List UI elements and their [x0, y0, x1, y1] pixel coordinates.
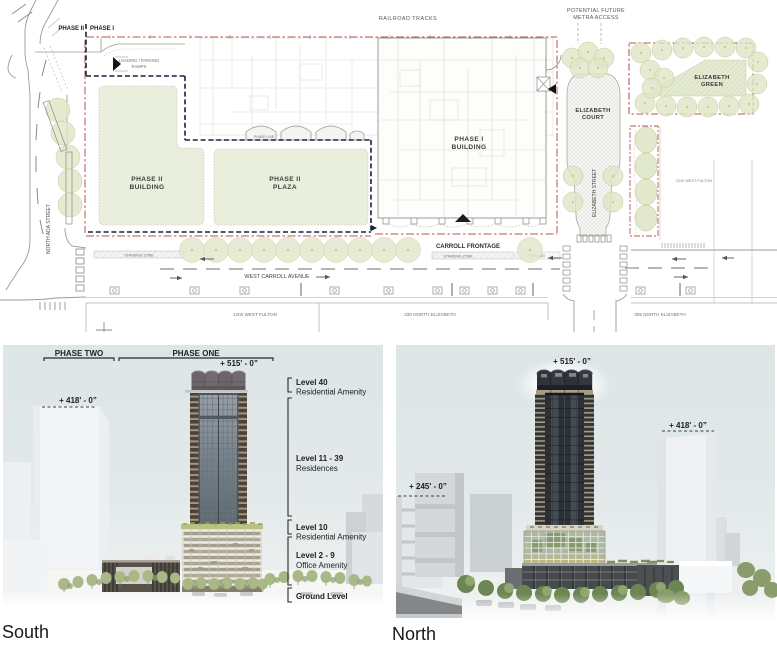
svg-text:PHASE LINE: PHASE LINE [254, 135, 275, 139]
svg-text:Office Amenity: Office Amenity [296, 561, 347, 570]
svg-text:CARROLL FRONTAGE: CARROLL FRONTAGE [436, 244, 500, 250]
svg-text:Ground Level: Ground Level [296, 592, 348, 601]
svg-text:1200 WEST FULTON: 1200 WEST FULTON [233, 312, 277, 317]
svg-text:Level 2 - 9: Level 2 - 9 [296, 551, 335, 560]
svg-text:COURT: COURT [582, 115, 604, 121]
svg-text:BUILDING: BUILDING [129, 184, 164, 191]
svg-text:South: South [2, 622, 49, 642]
svg-text:METRA ACCESS: METRA ACCESS [573, 15, 619, 21]
svg-text:PLAZA: PLAZA [273, 184, 297, 191]
svg-text:PHASE I: PHASE I [454, 136, 483, 143]
svg-text:Level 11 - 39: Level 11 - 39 [296, 454, 344, 463]
svg-text:POTENTIAL FUTURE: POTENTIAL FUTURE [567, 8, 625, 14]
svg-text:PHASE TWO: PHASE TWO [55, 349, 103, 358]
svg-text:North: North [392, 624, 436, 644]
svg-text:WEST CARROLL AVENUE: WEST CARROLL AVENUE [244, 274, 310, 280]
svg-text:ELIZABETH STREET: ELIZABETH STREET [592, 169, 598, 217]
svg-text:305 NORTH ELIZABETH: 305 NORTH ELIZABETH [634, 312, 685, 317]
svg-text:+ 515' - 0”: + 515' - 0” [553, 357, 591, 366]
svg-text:RAILROAD TRACKS: RAILROAD TRACKS [379, 16, 437, 22]
svg-text:+ 418' - 0”: + 418' - 0” [59, 396, 97, 405]
svg-text:ELIZABETH: ELIZABETH [575, 108, 610, 114]
svg-text:STANDING ZONE: STANDING ZONE [124, 253, 154, 257]
svg-text:PHASE II: PHASE II [269, 176, 300, 183]
svg-text:PHASE ONE: PHASE ONE [172, 349, 220, 358]
svg-text:+ 515' - 0”: + 515' - 0” [220, 359, 258, 368]
svg-text:Residences: Residences [296, 464, 338, 473]
svg-text:GREEN: GREEN [701, 82, 723, 88]
svg-text:Residential Amenity: Residential Amenity [296, 388, 366, 397]
svg-text:330 NORTH ELIZABETH: 330 NORTH ELIZABETH [404, 312, 455, 317]
svg-text:PHASE II: PHASE II [131, 176, 162, 183]
svg-text:BUILDING: BUILDING [451, 144, 486, 151]
svg-text:+ 418' - 0”: + 418' - 0” [669, 421, 707, 430]
svg-text:STANDING ZONE: STANDING ZONE [443, 254, 473, 258]
svg-text:PHASE I: PHASE I [90, 26, 114, 32]
svg-text:NORTH ADA STREET: NORTH ADA STREET [46, 204, 52, 254]
svg-text:1240 WEST FULTON: 1240 WEST FULTON [676, 179, 713, 183]
svg-text:PHASE II: PHASE II [58, 26, 84, 32]
svg-text:Level 10: Level 10 [296, 523, 328, 532]
svg-text:Level 40: Level 40 [296, 378, 328, 387]
svg-text:ELIZABETH: ELIZABETH [694, 75, 729, 81]
svg-text:Residential Amenity: Residential Amenity [296, 533, 366, 542]
svg-text:+ 245' - 0”: + 245' - 0” [409, 482, 447, 491]
svg-text:LOADING / PARKING: LOADING / PARKING [119, 58, 160, 63]
svg-text:RAMPS: RAMPS [132, 64, 147, 69]
